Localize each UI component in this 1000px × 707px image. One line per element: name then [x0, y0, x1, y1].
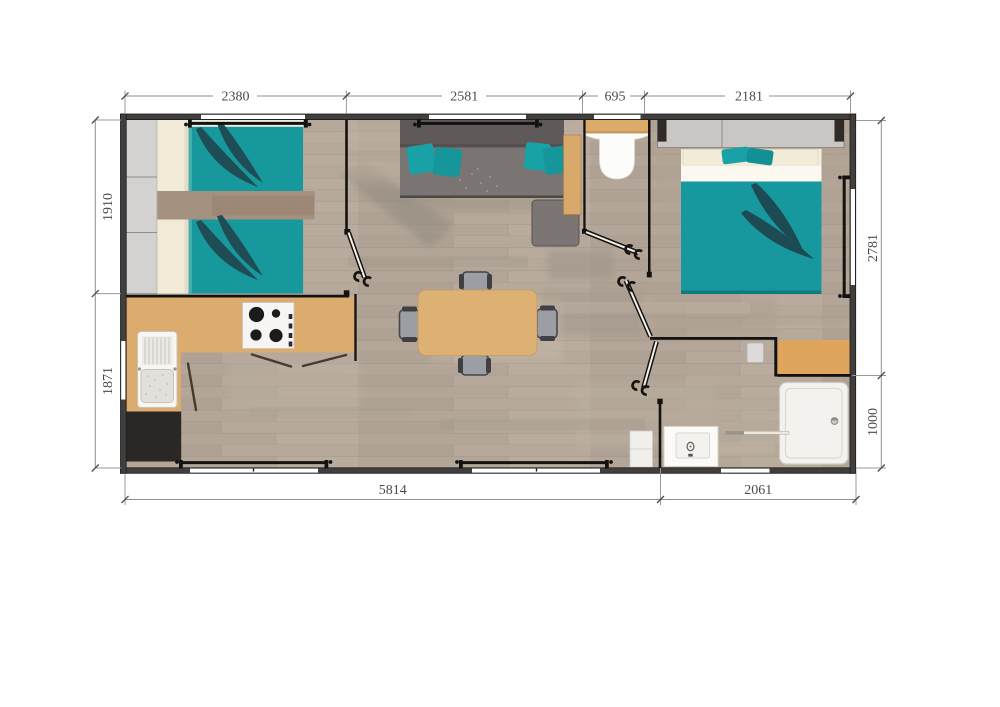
svg-text:1000: 1000	[866, 408, 881, 436]
svg-text:2061: 2061	[744, 483, 772, 498]
svg-text:695: 695	[605, 90, 626, 105]
svg-text:1910: 1910	[101, 193, 116, 221]
svg-text:2581: 2581	[450, 90, 478, 105]
svg-text:5814: 5814	[379, 483, 407, 498]
svg-text:2781: 2781	[866, 234, 881, 262]
svg-text:1871: 1871	[101, 367, 116, 395]
svg-text:2181: 2181	[735, 90, 763, 105]
svg-text:2380: 2380	[222, 90, 250, 105]
